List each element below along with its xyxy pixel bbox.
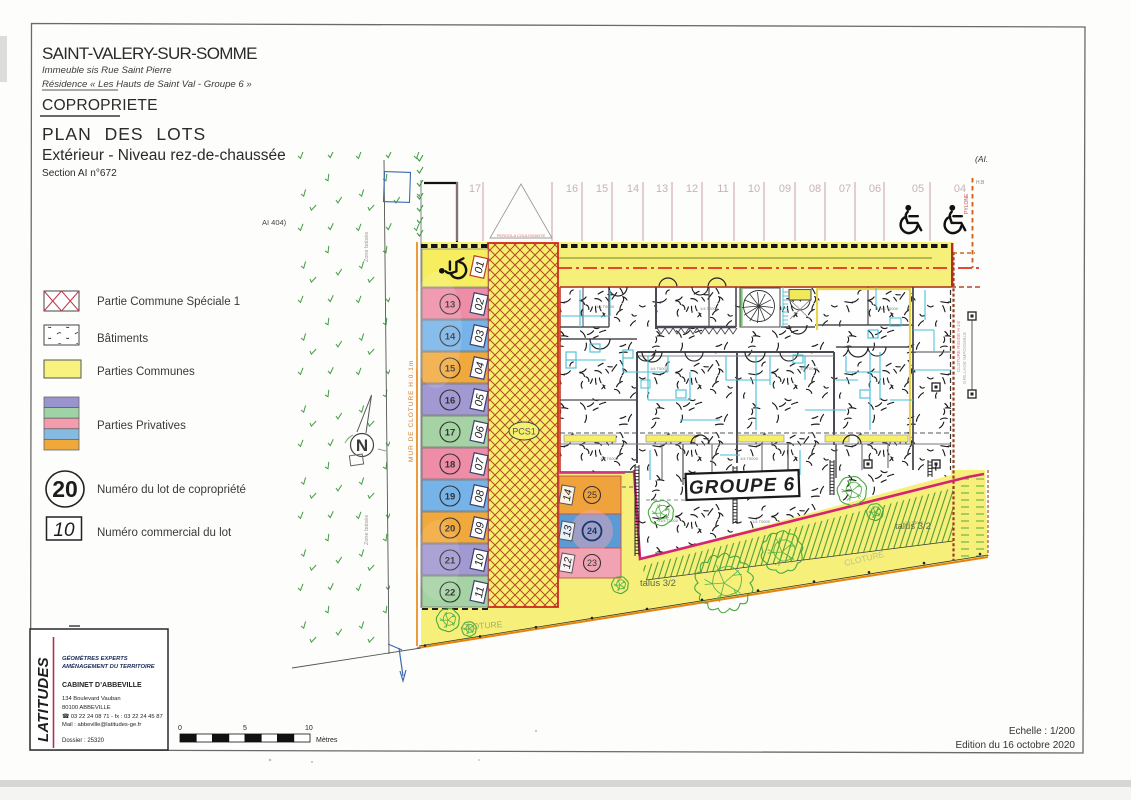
svg-text:PLAN DES LOTS: PLAN DES LOTS — [42, 124, 206, 144]
svg-text:PCS1: PCS1 — [512, 427, 536, 437]
svg-text:18: 18 — [445, 460, 456, 471]
svg-text:Zone boisée: Zone boisée — [364, 515, 370, 545]
svg-text:04: 04 — [473, 361, 487, 375]
svg-text:10: 10 — [53, 520, 75, 541]
svg-text:19: 19 — [445, 492, 456, 503]
svg-text:11: 11 — [473, 585, 487, 599]
svg-text:Edition du 16 octobre 2020: Edition du 16 octobre 2020 — [955, 740, 1075, 751]
svg-text:Bâtiments: Bâtiments — [97, 333, 148, 345]
svg-text:07: 07 — [839, 183, 851, 195]
svg-text:02: 02 — [473, 297, 487, 311]
svg-text:13: 13 — [561, 524, 575, 538]
svg-text:Numéro commercial du lot: Numéro commercial du lot — [97, 527, 232, 539]
svg-text:Résidence « Les Hauts de Saint: Résidence « Les Hauts de Saint Val - Gro… — [42, 79, 252, 90]
svg-text:CLOTURE RIGIDE H 1m: CLOTURE RIGIDE H 1m — [956, 321, 961, 372]
svg-text:Dossier : 25320: Dossier : 25320 — [62, 738, 105, 744]
svg-text:LATITUDES: LATITUDES — [35, 657, 52, 742]
svg-text:Section AI n°672: Section AI n°672 — [42, 168, 117, 179]
svg-text:06: 06 — [869, 183, 881, 195]
svg-text:08: 08 — [809, 183, 821, 195]
svg-text:Numéro du lot de copropriété: Numéro du lot de copropriété — [97, 484, 246, 496]
svg-text:COPROPRIETE: COPROPRIETE — [42, 97, 158, 114]
svg-text:1/4 T0000: 1/4 T0000 — [596, 304, 615, 309]
svg-text:☎ 03 22 24 08 71 - fx : 03 22: ☎ 03 22 24 08 71 - fx : 03 22 24 45 87 — [62, 713, 163, 720]
svg-text:14: 14 — [561, 488, 575, 502]
svg-text:20: 20 — [52, 476, 78, 502]
svg-text:134 Boulevard Vauban: 134 Boulevard Vauban — [62, 696, 121, 702]
svg-text:AI 404): AI 404) — [262, 218, 287, 227]
svg-text:Immeuble sis Rue Saint Pierre: Immeuble sis Rue Saint Pierre — [42, 65, 172, 76]
svg-text:GRILLAGE IMPOSSIBLE: GRILLAGE IMPOSSIBLE — [962, 332, 967, 384]
svg-text:10: 10 — [305, 725, 313, 732]
svg-text:1/4 T0000: 1/4 T0000 — [752, 519, 771, 524]
svg-text:SAINT-VALERY-SUR-SOMME: SAINT-VALERY-SUR-SOMME — [42, 44, 257, 63]
svg-text:09: 09 — [779, 183, 791, 195]
svg-text:12: 12 — [561, 556, 575, 570]
svg-text:15: 15 — [596, 183, 608, 195]
svg-text:Echelle : 1/200: Echelle : 1/200 — [1009, 726, 1076, 737]
svg-text:5: 5 — [243, 725, 247, 732]
svg-text:10: 10 — [748, 183, 760, 195]
svg-text:1/4 T0000: 1/4 T0000 — [700, 306, 719, 311]
svg-text:talus 3/2: talus 3/2 — [895, 521, 931, 532]
svg-text:1/4 T0000: 1/4 T0000 — [740, 456, 759, 461]
svg-text:14: 14 — [627, 183, 639, 195]
svg-text:N: N — [356, 436, 368, 455]
svg-text:0: 0 — [178, 725, 182, 732]
svg-text:1/4 T0000: 1/4 T0000 — [880, 306, 899, 311]
svg-text:Extérieur - Niveau rez-de-chau: Extérieur - Niveau rez-de-chaussée — [42, 147, 286, 164]
svg-text:H.B: H.B — [976, 180, 985, 186]
svg-text:13: 13 — [656, 183, 668, 195]
svg-text:05: 05 — [912, 183, 924, 195]
svg-text:CABINET D’ABBEVILLE: CABINET D’ABBEVILLE — [62, 682, 142, 689]
svg-text:25: 25 — [587, 490, 597, 500]
svg-text:23: 23 — [587, 558, 597, 568]
svg-text:09: 09 — [473, 521, 487, 535]
svg-text:(AI.: (AI. — [975, 154, 988, 164]
svg-text:Parties Privatives: Parties Privatives — [97, 420, 186, 432]
svg-text:04: 04 — [954, 183, 966, 195]
svg-text:1/4 T0000: 1/4 T0000 — [800, 366, 819, 371]
svg-text:Mètres: Mètres — [316, 737, 338, 744]
svg-text:24: 24 — [587, 526, 597, 536]
svg-text:MUR DE CLOTURE H:0.1m: MUR DE CLOTURE H:0.1m — [408, 360, 415, 462]
svg-text:1/4 T0000: 1/4 T0000 — [600, 456, 619, 461]
svg-text:talus 3/2: talus 3/2 — [640, 578, 676, 589]
svg-text:17: 17 — [445, 428, 456, 439]
svg-text:16: 16 — [566, 183, 578, 195]
svg-text:01: 01 — [473, 260, 487, 274]
svg-text:1/4 T0000: 1/4 T0000 — [650, 366, 669, 371]
svg-text:Zone boisée: Zone boisée — [364, 232, 370, 262]
svg-text:PERGOLA COULISSANTE: PERGOLA COULISSANTE — [497, 233, 546, 238]
svg-text:PYLONE: PYLONE — [964, 193, 970, 214]
svg-text:11: 11 — [717, 183, 728, 195]
svg-text:80100 ABBEVILLE: 80100 ABBEVILLE — [62, 705, 111, 711]
svg-text:Mail : abbeville@latitudes-ge.: Mail : abbeville@latitudes-ge.fr — [62, 722, 141, 728]
svg-text:AMÉNAGEMENT DU TERRITOIRE: AMÉNAGEMENT DU TERRITOIRE — [61, 662, 156, 670]
svg-text:16: 16 — [445, 396, 456, 407]
svg-text:17: 17 — [469, 183, 481, 195]
svg-text:Partie Commune Spéciale 1: Partie Commune Spéciale 1 — [97, 296, 240, 308]
svg-text:GÉOMÈTRES EXPERTS: GÉOMÈTRES EXPERTS — [62, 654, 128, 662]
svg-text:GROUPE 6: GROUPE 6 — [689, 474, 796, 499]
svg-text:Parties Communes: Parties Communes — [97, 366, 195, 378]
svg-text:12: 12 — [686, 183, 698, 195]
